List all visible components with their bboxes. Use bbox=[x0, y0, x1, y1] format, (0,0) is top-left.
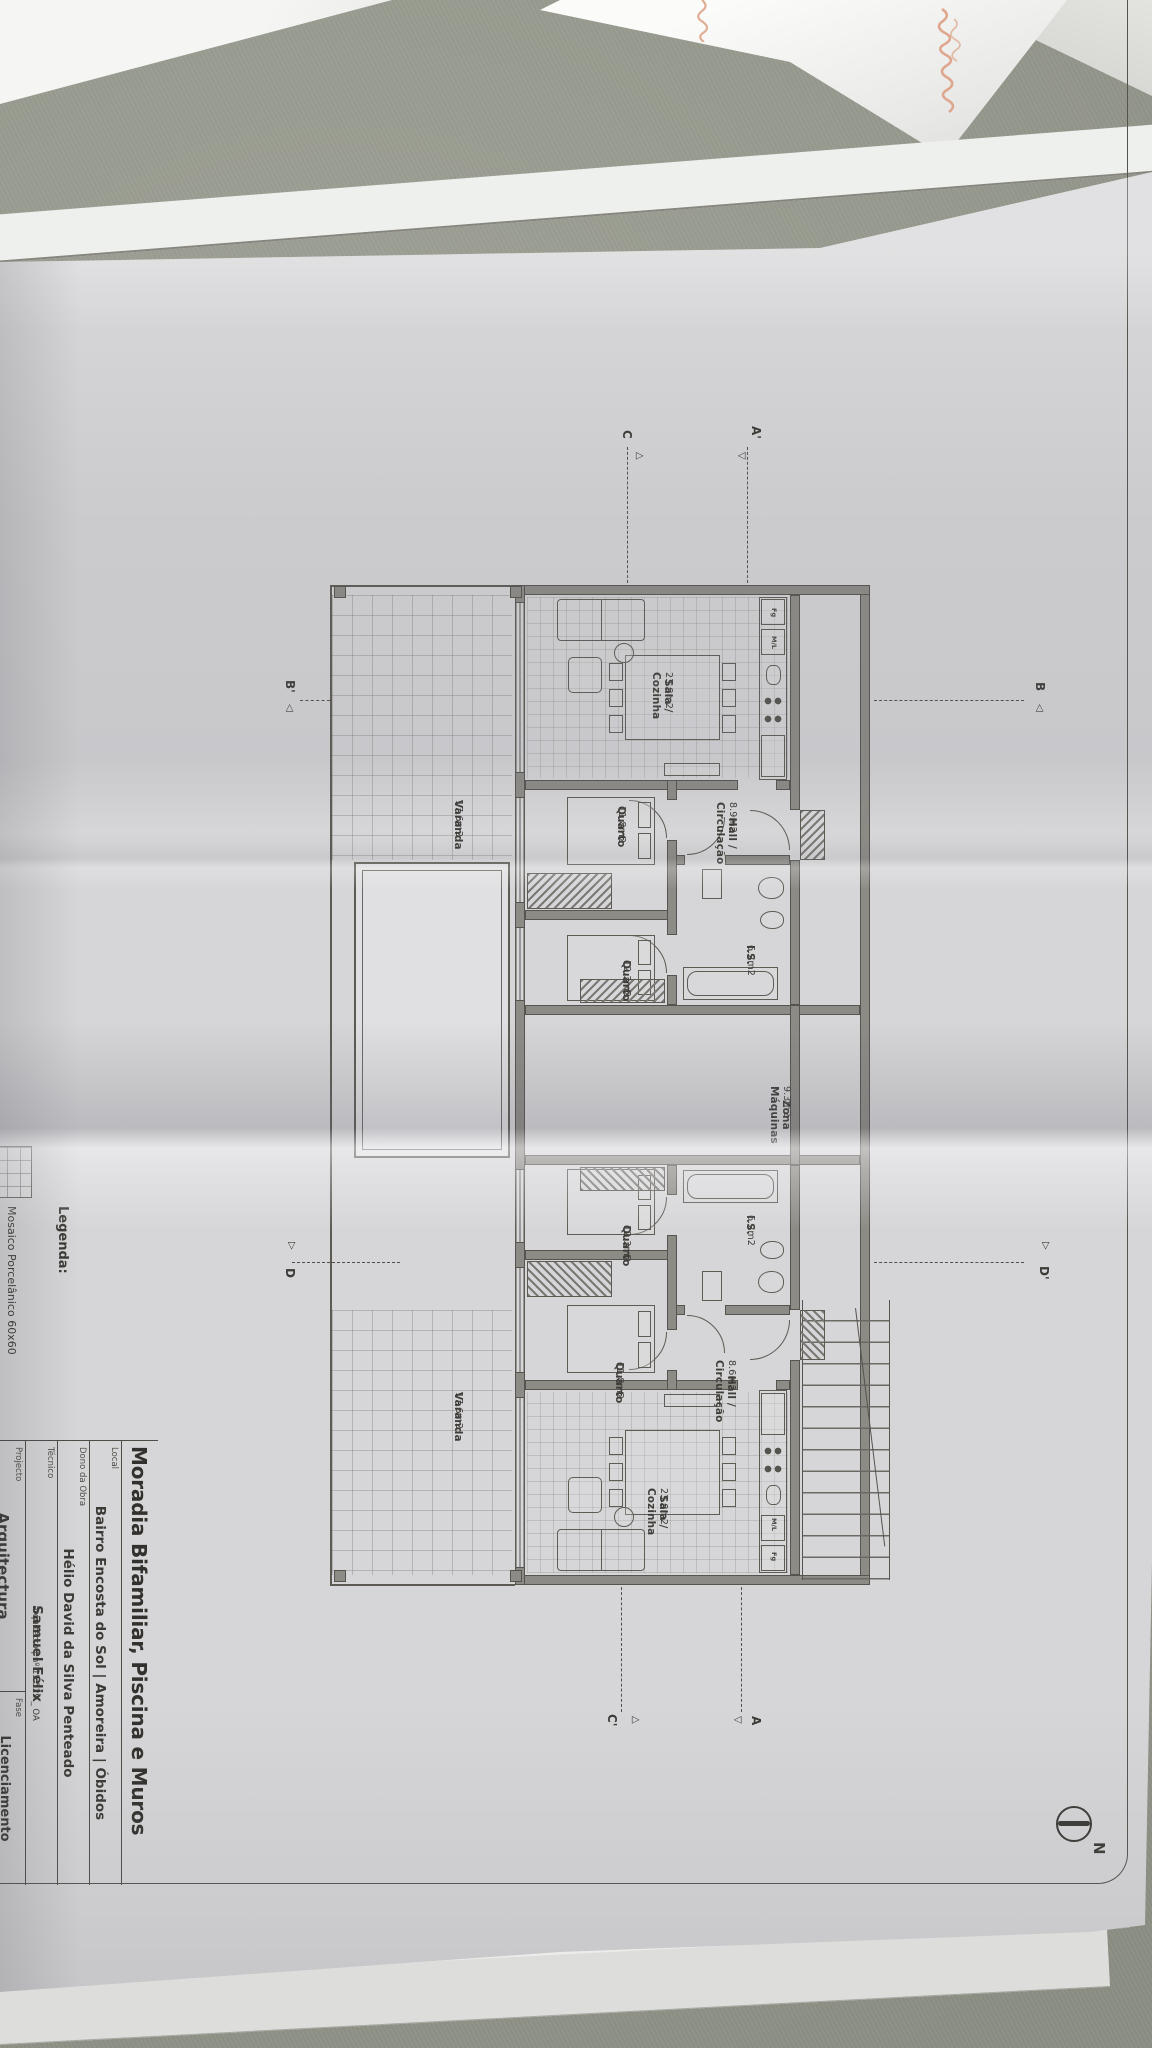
toilet bbox=[758, 1271, 784, 1293]
kitchen-sink bbox=[766, 1485, 781, 1505]
marker-b-prime-triangle-icon: ◁ bbox=[284, 704, 294, 712]
pillow bbox=[638, 1311, 651, 1337]
cell-fase: Fase Licenciamento bbox=[0, 1691, 25, 1885]
field-label-fase: Fase bbox=[13, 1698, 23, 1717]
section-line-c-prime bbox=[621, 1582, 622, 1712]
washer-tag-a: M/L bbox=[771, 636, 778, 649]
side-table-round bbox=[614, 643, 634, 663]
marker-c: C bbox=[621, 430, 633, 439]
hob bbox=[762, 1441, 784, 1477]
tecnico-name: Samuel Félix bbox=[29, 1605, 45, 1702]
title-block: Moradia Bifamiliar, Piscina e Muros Loca… bbox=[0, 1440, 158, 1884]
dining-chair bbox=[609, 1437, 623, 1455]
project-title: Moradia Bifamiliar, Piscina e Muros bbox=[127, 1446, 151, 1835]
marker-d: D bbox=[284, 1268, 296, 1278]
title-block-row-local: Local Bairro Encosta do Sol | Amoreira |… bbox=[89, 1441, 121, 1885]
section-line-b-bottom bbox=[300, 700, 330, 701]
section-line-d-top bbox=[874, 1262, 1024, 1263]
marker-d-prime: D' bbox=[1038, 1266, 1050, 1280]
corridor-wall bbox=[790, 595, 800, 810]
wardrobe-q1 bbox=[527, 1261, 612, 1297]
wardrobe-q2 bbox=[580, 1167, 665, 1191]
dining-chair bbox=[722, 1463, 736, 1481]
washbasin bbox=[702, 869, 722, 899]
dining-chair bbox=[722, 715, 736, 733]
marker-b-triangle-icon: ◁ bbox=[1034, 704, 1044, 712]
kitchen-cabinet bbox=[761, 1393, 785, 1435]
fridge-tag-b: Fg bbox=[771, 1552, 778, 1561]
field-label-dono: Dono da Obra bbox=[77, 1447, 87, 1506]
marker-a-prime: A' bbox=[750, 426, 762, 439]
title-block-row-title: Moradia Bifamiliar, Piscina e Muros bbox=[121, 1441, 158, 1885]
dining-chair bbox=[722, 663, 736, 681]
field-label-tecnico: Técnico bbox=[45, 1447, 55, 1478]
wall-hall-is bbox=[725, 1305, 790, 1315]
pillow bbox=[638, 802, 651, 828]
north-label: N bbox=[1091, 1842, 1106, 1855]
section-line-a-prime bbox=[747, 447, 748, 583]
marker-b-prime: B' bbox=[284, 680, 296, 693]
dining-chair bbox=[609, 1489, 623, 1507]
unit-a-geometry bbox=[330, 585, 870, 1005]
party-wall-a bbox=[525, 1005, 860, 1015]
title-block-row-dono: Dono da Obra Hélio David da Silva Pentea… bbox=[57, 1441, 89, 1885]
bidet bbox=[760, 911, 784, 929]
title-block-row-tecnico: Técnico Samuel Félix arquitecto | nº 15.… bbox=[25, 1441, 57, 1885]
wall-hall-quartos bbox=[667, 840, 677, 935]
kitchen-cabinet bbox=[761, 735, 785, 777]
cell-projecto: Projecto Arquitectura bbox=[0, 1441, 25, 1691]
dining-table bbox=[625, 1430, 720, 1515]
corridor-wall bbox=[790, 860, 800, 1005]
floor-plan-drawing: N C △ A' ▽ C' △ A ▽ B ◁ B' ◁ D ▷ D' ▷ bbox=[0, 0, 1152, 2048]
pillow bbox=[638, 1342, 651, 1368]
wall-hall-quartos bbox=[667, 780, 677, 800]
kitchen-sink bbox=[766, 665, 781, 685]
marker-c-prime-triangle-icon: △ bbox=[630, 1716, 640, 1724]
pillow bbox=[638, 833, 651, 859]
wall-hall-quartos bbox=[667, 1235, 677, 1330]
section-line-a bbox=[741, 1582, 742, 1712]
dining-chair bbox=[609, 1463, 623, 1481]
wall-sala-hall bbox=[525, 1380, 738, 1390]
north-compass-needle bbox=[1058, 1821, 1090, 1826]
unit-b-geometry bbox=[330, 1165, 870, 1585]
field-value-projecto: Arquitectura bbox=[0, 1441, 12, 1691]
marker-a-triangle-icon: ▽ bbox=[732, 1716, 742, 1724]
wall-sala-hall bbox=[525, 780, 738, 790]
dining-chair bbox=[609, 663, 623, 681]
marker-c-prime: C' bbox=[606, 1714, 618, 1726]
wardrobe-q1 bbox=[527, 873, 612, 909]
marker-c-triangle-icon: △ bbox=[634, 452, 644, 460]
sofa bbox=[557, 599, 645, 641]
field-value-fase: Licenciamento bbox=[0, 1692, 12, 1885]
legend-heading: Legenda: bbox=[55, 1206, 70, 1274]
marker-a: A bbox=[750, 1716, 762, 1725]
marker-b: B bbox=[1034, 682, 1046, 691]
wall-hall-quartos bbox=[667, 975, 677, 1005]
field-value-local: Bairro Encosta do Sol | Amoreira | Óbido… bbox=[92, 1441, 108, 1885]
marker-d-prime-triangle-icon: ▷ bbox=[1040, 1242, 1050, 1250]
dining-chair bbox=[722, 1489, 736, 1507]
hob bbox=[762, 693, 784, 729]
section-line-c bbox=[627, 447, 628, 583]
toilet bbox=[758, 877, 784, 899]
bathtub-inner bbox=[687, 971, 774, 996]
pillow bbox=[638, 940, 651, 965]
marker-a-prime-triangle-icon: ▽ bbox=[736, 452, 746, 460]
wall-hall-quartos bbox=[667, 1165, 677, 1195]
wall-q1-q2 bbox=[525, 910, 672, 920]
corridor-wall bbox=[790, 1165, 800, 1310]
facade-pier-4 bbox=[515, 1000, 525, 1170]
bidet bbox=[760, 1241, 784, 1259]
entry-porch-grate bbox=[800, 1310, 825, 1360]
wall-q1-q2 bbox=[525, 1250, 672, 1260]
field-label-projecto: Projecto bbox=[13, 1447, 23, 1481]
dining-chair bbox=[722, 1437, 736, 1455]
armchair bbox=[568, 657, 602, 693]
fridge-tag-a: Fg bbox=[771, 608, 778, 617]
field-label-local: Local bbox=[109, 1447, 119, 1469]
washbasin bbox=[702, 1271, 722, 1301]
party-wall-b bbox=[525, 1155, 860, 1165]
title-block-row-projecto-fase: Projecto Arquitectura Fase Licenciamento bbox=[0, 1441, 25, 1885]
sofa bbox=[557, 1529, 645, 1571]
field-value-tecnico: Samuel Félix arquitecto | nº 15.529 _ OA bbox=[29, 1441, 45, 1885]
armchair bbox=[568, 1477, 602, 1513]
field-value-dono: Hélio David da Silva Penteado bbox=[60, 1441, 76, 1885]
corridor-wall bbox=[790, 1360, 800, 1575]
bathtub-inner bbox=[687, 1174, 774, 1199]
washer-tag-b: M/L bbox=[771, 1518, 778, 1531]
entry-porch-grate bbox=[800, 810, 825, 860]
section-line-b-top bbox=[874, 700, 1024, 701]
dining-chair bbox=[609, 689, 623, 707]
marker-d-triangle-icon: ▷ bbox=[286, 1242, 296, 1250]
pillow bbox=[638, 1205, 651, 1230]
tv-unit bbox=[664, 763, 720, 776]
wall-hall-quartos bbox=[667, 1370, 677, 1390]
dining-chair bbox=[609, 715, 623, 733]
wall-sala-hall bbox=[776, 1380, 790, 1390]
side-table-round bbox=[614, 1507, 634, 1527]
legend-tile-swatch-icon bbox=[0, 1146, 32, 1198]
wall-sala-hall bbox=[776, 780, 790, 790]
dining-chair bbox=[722, 689, 736, 707]
